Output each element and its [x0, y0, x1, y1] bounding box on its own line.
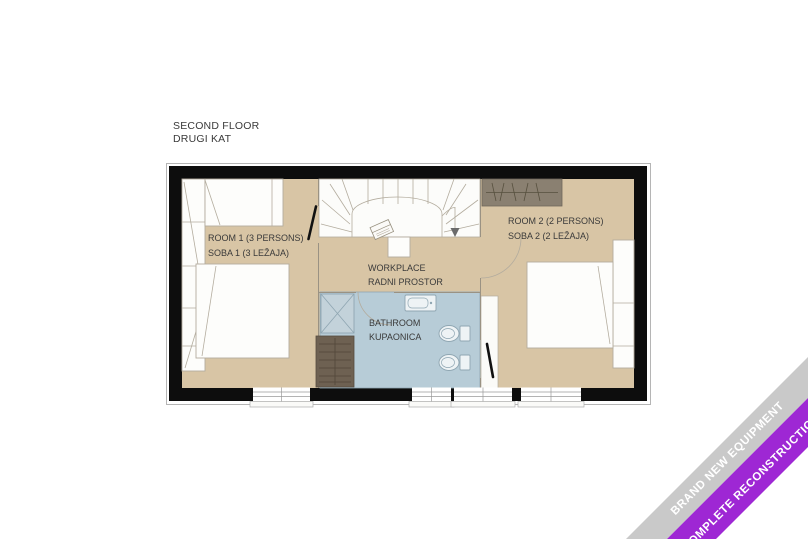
floor-plan: ROOM 1 (3 PERSONS) SOBA 1 (3 LEŽAJA) ROO…: [167, 164, 651, 408]
window: [451, 388, 515, 408]
window: [409, 388, 454, 408]
toilet-icon-2: [439, 355, 470, 371]
window: [250, 388, 313, 408]
title-line-2: DRUGI KAT: [173, 133, 232, 145]
room2-wardrobe: [482, 179, 562, 206]
workplace-desk: [388, 237, 410, 257]
workplace-label: WORKPLACE: [368, 263, 426, 273]
bathroom-label: BATHROOM: [369, 318, 420, 328]
room2-entry-strip: [481, 296, 498, 388]
page-title: SECOND FLOOR DRUGI KAT: [173, 120, 260, 145]
room1-label: ROOM 1 (3 PERSONS): [208, 233, 304, 243]
corner-ribbon: BRAND NEW EQUIPMENT COMPLETE RECONSTRUCT…: [626, 357, 808, 539]
workplace-label-hr: RADNI PROSTOR: [368, 277, 443, 287]
room2-label-hr: SOBA 2 (2 LEŽAJA): [508, 231, 589, 241]
room1-bed-single: [205, 179, 283, 226]
room2-nightstands: [613, 240, 634, 368]
window: [518, 388, 584, 408]
room1-furniture: [182, 179, 289, 371]
room1-bed-double: [196, 264, 289, 358]
floor-plan-page: SECOND FLOOR DRUGI KAT: [0, 0, 808, 539]
title-line-1: SECOND FLOOR: [173, 120, 260, 132]
room2-bed-double: [527, 262, 613, 348]
bathroom-bench: [316, 336, 354, 387]
room2-label: ROOM 2 (2 PERSONS): [508, 216, 604, 226]
bathroom-label-hr: KUPAONICA: [369, 332, 421, 342]
toilet-icon: [439, 326, 470, 342]
sink-tap: [430, 302, 432, 304]
room1-label-hr: SOBA 1 (3 LEŽAJA): [208, 248, 289, 258]
windows: [250, 388, 584, 408]
floor-plan-canvas: SECOND FLOOR DRUGI KAT: [0, 0, 808, 539]
